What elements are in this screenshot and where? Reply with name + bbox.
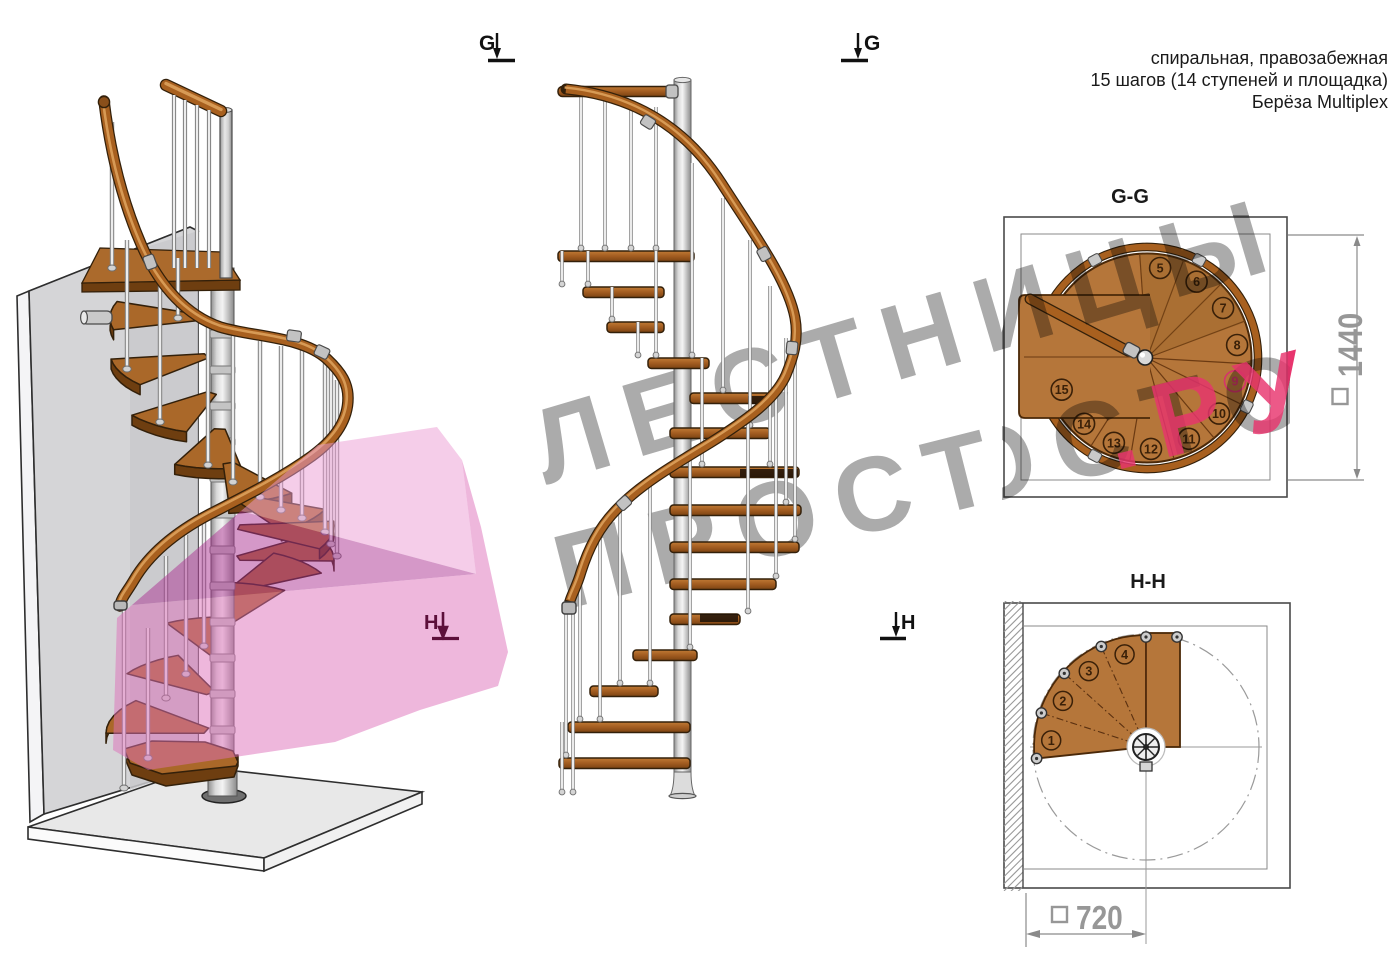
svg-text:1: 1 — [1048, 734, 1055, 748]
svg-text:3: 3 — [1085, 665, 1092, 679]
svg-text:спиральная, правозабежная: спиральная, правозабежная — [1151, 48, 1388, 68]
svg-text:2: 2 — [1059, 694, 1066, 708]
svg-text:1440: 1440 — [1331, 313, 1370, 377]
svg-text:G: G — [864, 32, 880, 55]
svg-text:G-G: G-G — [1111, 186, 1149, 208]
svg-text:720: 720 — [1076, 900, 1123, 937]
svg-text:H: H — [901, 612, 915, 634]
svg-text:15 шагов (14 ступеней и площад: 15 шагов (14 ступеней и площадка) — [1090, 70, 1388, 90]
svg-text:H: H — [424, 612, 438, 634]
svg-text:Берёза Multiplex: Берёза Multiplex — [1252, 92, 1388, 112]
svg-text:4: 4 — [1121, 648, 1128, 662]
svg-text:G: G — [479, 32, 495, 55]
svg-text:H-H: H-H — [1130, 571, 1166, 593]
